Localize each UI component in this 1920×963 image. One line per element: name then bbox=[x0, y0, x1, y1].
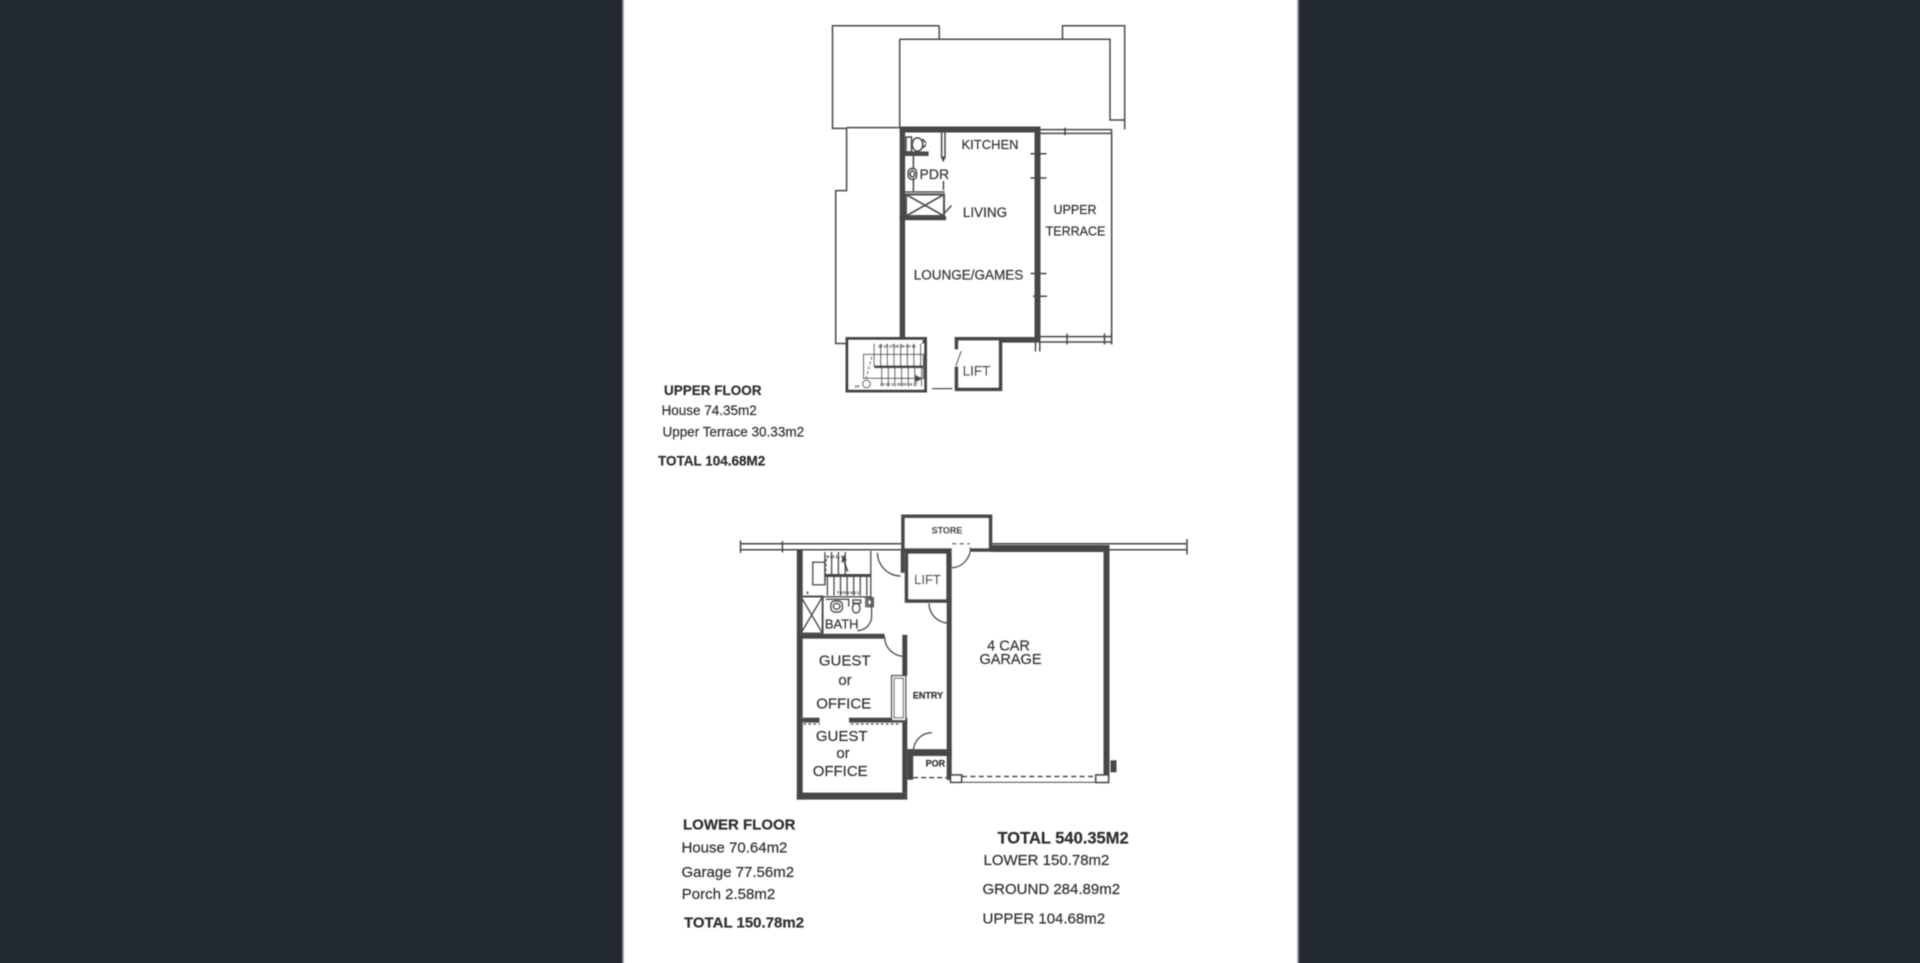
svg-text:TOTAL 104.68M2: TOTAL 104.68M2 bbox=[658, 454, 765, 469]
svg-text:9 10 11 12: 9 10 11 12 bbox=[827, 554, 846, 559]
svg-text:TOTAL 150.78m2: TOTAL 150.78m2 bbox=[684, 915, 804, 932]
svg-text:or: or bbox=[836, 745, 849, 762]
svg-text:KITCHEN: KITCHEN bbox=[961, 137, 1018, 152]
svg-text:TOTAL 540.35M2: TOTAL 540.35M2 bbox=[998, 830, 1129, 848]
svg-text:STORE: STORE bbox=[932, 526, 963, 536]
svg-text:25 26 27 28 29 30 31: 25 26 27 28 29 30 31 bbox=[878, 344, 917, 349]
svg-text:PDR: PDR bbox=[920, 166, 950, 182]
svg-text:GUEST: GUEST bbox=[819, 653, 871, 670]
svg-text:LIFT: LIFT bbox=[914, 572, 941, 587]
svg-text:Upper Terrace 30.33m2: Upper Terrace 30.33m2 bbox=[663, 425, 805, 440]
svg-text:UPPER: UPPER bbox=[1053, 203, 1096, 217]
svg-text:POR: POR bbox=[926, 759, 946, 769]
svg-text:23 22 21 20 19 18 17: 23 22 21 20 19 18 17 bbox=[880, 381, 919, 386]
svg-text:UPPER 104.68m2: UPPER 104.68m2 bbox=[983, 911, 1106, 928]
svg-text:GARAGE: GARAGE bbox=[979, 652, 1041, 668]
svg-text:House 74.35m2: House 74.35m2 bbox=[662, 403, 757, 418]
svg-text:BATH: BATH bbox=[825, 617, 859, 632]
svg-text:House 70.64m2: House 70.64m2 bbox=[682, 840, 788, 857]
svg-text:7 6 5 4 3 2 1: 7 6 5 4 3 2 1 bbox=[837, 590, 860, 595]
svg-text:LOWER 150.78m2: LOWER 150.78m2 bbox=[984, 852, 1110, 869]
svg-text:UPPER FLOOR: UPPER FLOOR bbox=[664, 383, 762, 398]
svg-text:OFFICE: OFFICE bbox=[816, 696, 871, 713]
svg-text:GUEST: GUEST bbox=[816, 728, 868, 745]
svg-text:or: or bbox=[838, 672, 851, 689]
svg-text:TERRACE: TERRACE bbox=[1046, 225, 1106, 239]
svg-text:8: 8 bbox=[806, 590, 809, 595]
svg-text:ENTRY: ENTRY bbox=[913, 691, 943, 701]
svg-text:LOUNGE/GAMES: LOUNGE/GAMES bbox=[914, 268, 1024, 283]
svg-text:LOWER FLOOR: LOWER FLOOR bbox=[683, 817, 796, 834]
svg-text:LIVING: LIVING bbox=[963, 205, 1007, 220]
svg-text:24: 24 bbox=[855, 383, 860, 388]
svg-text:LIFT: LIFT bbox=[963, 364, 991, 379]
svg-text:OFFICE: OFFICE bbox=[813, 763, 868, 780]
svg-text:GROUND 284.89m2: GROUND 284.89m2 bbox=[983, 881, 1121, 898]
svg-text:Porch 2.58m2: Porch 2.58m2 bbox=[682, 886, 775, 903]
svg-text:Garage 77.56m2: Garage 77.56m2 bbox=[682, 864, 795, 881]
